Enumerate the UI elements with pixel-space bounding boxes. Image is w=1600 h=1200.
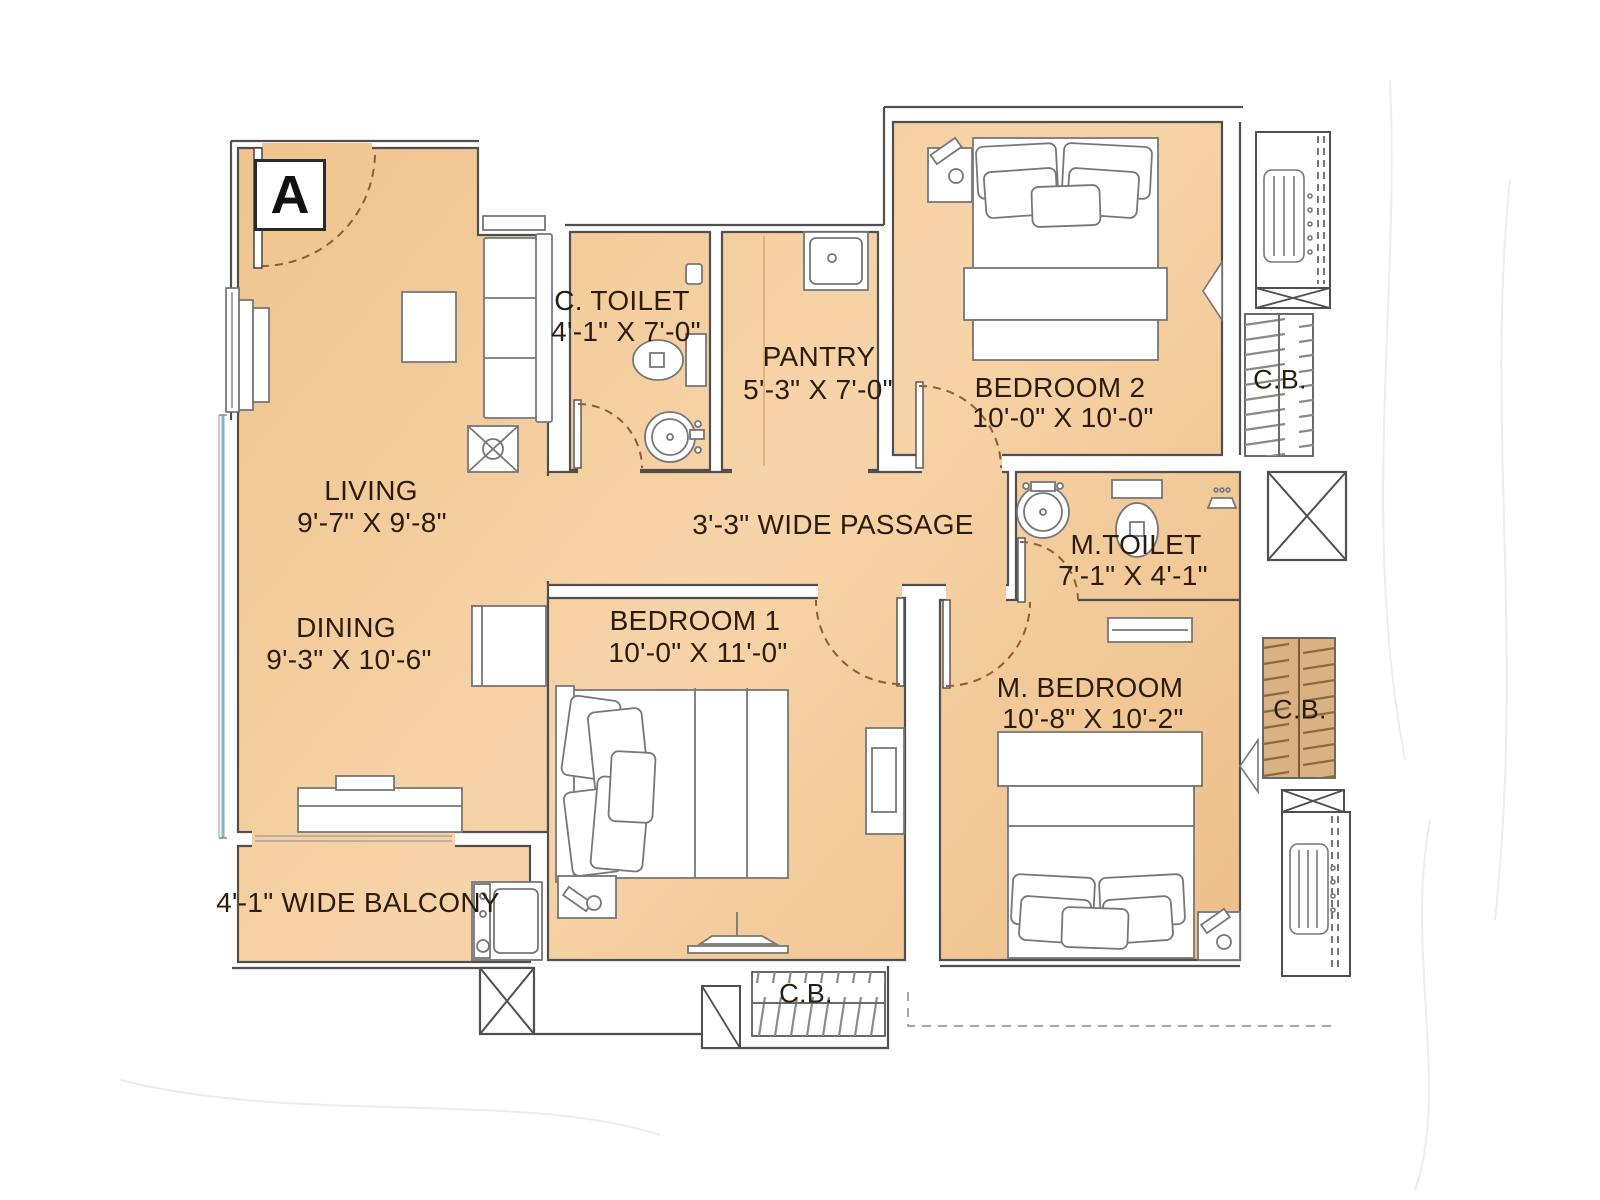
m-toilet-dims: 7'-1" X 4'-1" <box>1058 560 1208 592</box>
coffee-table <box>402 292 456 362</box>
ac-ledge-bottom-right <box>1282 790 1350 976</box>
cb-top-right-label: C.B. <box>1253 365 1307 396</box>
bed-bedroom2 <box>964 138 1167 360</box>
passage-label: 3'-3" WIDE PASSAGE <box>692 509 974 541</box>
pantry-dims: 5'-3" X 7'-0" <box>743 374 893 406</box>
shaft-x-mid-right <box>1268 472 1346 560</box>
tv-unit <box>239 300 269 410</box>
m-bedroom-dims: 10'-8" X 10'-2" <box>1002 703 1183 735</box>
floor-plan: A LIVING 9'-7" X 9'-8" DINING 9'-3" X 10… <box>0 0 1600 1200</box>
pantry-label: PANTRY <box>763 341 876 373</box>
dresser-m-bedroom <box>1108 618 1192 642</box>
shaft-x-strip-top <box>1256 288 1330 308</box>
bedroom1-label: BEDROOM 1 <box>610 605 781 637</box>
living-dims: 9'-7" X 9'-8" <box>297 507 447 539</box>
cb-bottom-label: C.B. <box>779 979 833 1010</box>
m-bedroom-label: M. BEDROOM <box>997 672 1184 704</box>
balcony-label: 4'-1" WIDE BALCONY <box>216 887 500 919</box>
c-toilet-label: C. TOILET <box>554 285 689 317</box>
bed-bedroom1 <box>556 686 788 882</box>
bedside-table-bedroom2 <box>928 138 972 202</box>
unit-label-box: A <box>254 159 326 231</box>
sofa <box>484 234 552 422</box>
bedside-table-bedroom1 <box>558 876 616 918</box>
bedroom1-dims: 10'-0" X 11'-0" <box>608 637 787 669</box>
m-toilet-label: M.TOILET <box>1070 529 1201 561</box>
floor-plan-svg <box>0 0 1600 1200</box>
living-label: LIVING <box>324 475 418 507</box>
utility-box-icon <box>468 426 518 472</box>
study-desk <box>866 728 904 834</box>
unit-label: A <box>271 168 310 222</box>
m-bedroom-window-icon <box>1240 740 1258 792</box>
c-toilet-dims: 4'-1" X 7'-0" <box>551 316 701 348</box>
shaft-x-bottom-left <box>480 968 534 1034</box>
bed-m-bedroom <box>998 732 1202 958</box>
half-shaft-box <box>702 986 740 1048</box>
bedroom2-label: BEDROOM 2 <box>975 372 1146 404</box>
bedroom2-dims: 10'-0" X 10'-0" <box>972 402 1153 434</box>
dining-dims: 9'-3" X 10'-6" <box>266 644 432 676</box>
dining-label: DINING <box>296 612 396 644</box>
ac-ledge-top-right <box>1256 132 1330 308</box>
shaft-x-strip-bottom <box>1282 790 1344 812</box>
foyer-shelf <box>483 216 545 230</box>
cb-mid-right-label: C.B. <box>1273 695 1327 726</box>
dining-cabinet <box>472 606 546 686</box>
ac-unit-icon-2 <box>1290 844 1335 934</box>
pantry-sink <box>804 232 868 290</box>
geyser-icon <box>686 264 702 284</box>
layout-dashed-guide <box>908 992 1336 1026</box>
living-window <box>226 288 239 412</box>
bedside-table-m-bedroom <box>1198 909 1240 960</box>
